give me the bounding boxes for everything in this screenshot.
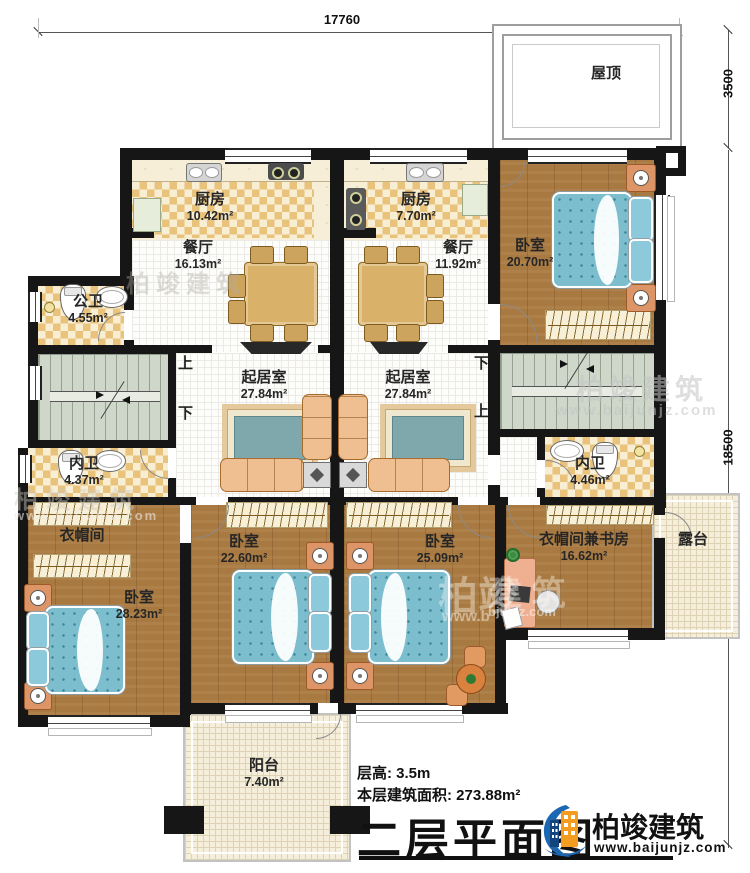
room-label-bedroom-bottom-left: 卧室28.23m²: [84, 590, 194, 621]
watermark-website: www.baijunjz.com: [14, 508, 158, 523]
room-area: 28.23m²: [84, 607, 194, 621]
dimension-roof-label: 3500: [721, 62, 736, 106]
nightstand: [306, 662, 334, 690]
bed: [232, 570, 314, 664]
room-label-cloakroom: 衣帽间: [34, 528, 130, 545]
room-name: 卧室: [478, 238, 582, 255]
room-name: 餐厅: [156, 240, 240, 257]
fridge-icon: [133, 198, 161, 232]
chair: [426, 300, 444, 324]
room-name: 卧室: [84, 590, 194, 607]
room-area: 10.42m²: [168, 209, 252, 223]
nightstand: [346, 662, 374, 690]
pillow: [349, 612, 371, 652]
window-sill: [48, 728, 152, 736]
room-area: 27.84m²: [212, 387, 316, 401]
wall: [188, 703, 225, 714]
room-area: 27.84m²: [356, 387, 460, 401]
wall: [318, 345, 344, 353]
room-area: 4.55m²: [48, 311, 128, 325]
stove-icon: [268, 163, 304, 180]
room-label-balcony: 阳台7.40m²: [214, 758, 314, 789]
room-name: 内卫: [44, 456, 124, 473]
bed-blanket: [271, 573, 298, 661]
bed-blanket: [594, 195, 620, 285]
wall: [488, 148, 500, 304]
sofa: [220, 458, 304, 492]
roof-inner-line: [512, 44, 660, 128]
window: [18, 455, 32, 483]
wall: [488, 485, 500, 505]
nightstand: [306, 542, 334, 570]
rug-center: [392, 416, 464, 460]
room-area: 16.62m²: [508, 549, 660, 563]
counter-edge: [132, 181, 330, 182]
bed-blanket: [77, 609, 103, 691]
chair: [396, 324, 420, 342]
wall: [310, 703, 318, 714]
room-name: 起居室: [212, 370, 316, 387]
floor-area-text: 本层建筑面积: 273.88m²: [357, 784, 520, 805]
stove-icon: [346, 188, 366, 230]
room-label-living-right: 起居室27.84m²: [356, 370, 460, 401]
sofa: [368, 458, 450, 492]
wall: [28, 440, 176, 448]
wall: [168, 353, 176, 447]
room-name: 露台: [658, 532, 728, 549]
room-name: 屋顶: [560, 66, 652, 83]
room-label-public-bathroom: 公卫4.55m²: [48, 294, 128, 325]
window: [225, 148, 311, 164]
kitchen-sink-icon: [406, 163, 444, 182]
wall: [537, 488, 545, 497]
room-label-roof: 屋顶: [560, 66, 652, 83]
watermark-website-right: bjunjz.com: [488, 604, 556, 619]
wall: [18, 715, 48, 727]
bed-blanket: [381, 573, 408, 661]
dimension-right-label: 18500: [721, 422, 736, 474]
lamp-icon: [634, 446, 645, 457]
room-name: 阳台: [214, 758, 314, 775]
wall: [338, 703, 356, 714]
dining-table: [244, 262, 318, 326]
chair: [250, 324, 274, 342]
pillow: [309, 612, 331, 652]
nightstand: [346, 542, 374, 570]
room-label-bathroom-left: 内卫4.37m²: [44, 456, 124, 487]
chair: [364, 246, 388, 264]
window-sill: [225, 715, 312, 723]
stairs-left-down-label: 下: [178, 402, 193, 423]
chair: [250, 246, 274, 264]
pillow: [349, 574, 371, 614]
room-area: 4.46m²: [548, 473, 632, 487]
brand-website: www.baijunjz.com: [594, 840, 727, 855]
room-label-bedroom-top-right: 卧室20.70m²: [478, 238, 582, 269]
stairs-arrow-icon: [560, 360, 568, 368]
room-name: 卧室: [388, 534, 492, 551]
window: [370, 148, 467, 164]
wall: [654, 505, 665, 515]
chair: [426, 274, 444, 298]
nightstand: [626, 164, 656, 192]
stairs-left-up-label: 上: [178, 352, 193, 373]
party-wall: [330, 148, 344, 238]
room-area: 4.37m²: [44, 473, 124, 487]
chair: [284, 324, 308, 342]
kitchen-sink-icon: [186, 163, 222, 182]
hall-right-floor: [500, 437, 537, 497]
wall: [540, 497, 665, 505]
room-label-bathroom-right: 内卫4.46m²: [548, 456, 632, 487]
room-area: 20.70m²: [478, 255, 582, 269]
chair: [364, 324, 388, 342]
room-label-bedroom-mid-left: 卧室22.60m²: [192, 534, 296, 565]
pillow: [27, 648, 49, 686]
window: [28, 292, 42, 322]
rug-center: [234, 416, 306, 460]
room-label-dining-left: 餐厅16.13m²: [156, 240, 240, 271]
balcony-pier: [164, 806, 204, 834]
floor-height-text: 层高: 3.5m: [357, 762, 430, 783]
extension-line: [38, 18, 39, 38]
wardrobe: [226, 502, 328, 528]
room-name: 厨房: [374, 192, 458, 209]
nightstand: [626, 284, 656, 312]
room-area: 16.13m²: [156, 257, 240, 271]
stairs-arrow-icon: [96, 391, 104, 399]
chair: [228, 300, 246, 324]
room-area: 7.70m²: [374, 209, 458, 223]
window: [28, 366, 42, 400]
room-label-study: 衣帽间兼书房16.62m²: [508, 532, 660, 563]
tv-icon: [370, 342, 428, 354]
pillow: [27, 612, 49, 650]
wall: [500, 429, 654, 437]
room-label-living-left: 起居室27.84m²: [212, 370, 316, 401]
stairs-left-rail: [50, 391, 160, 402]
brand-logo-icon: [540, 804, 590, 858]
room-label-bedroom-mid-right: 卧室25.09m²: [388, 534, 492, 565]
room-area: 25.09m²: [388, 551, 492, 565]
dimension-top-label: 17760: [300, 12, 384, 27]
pillow: [309, 574, 331, 614]
watermark-website: www.baijunjz.com: [556, 402, 717, 419]
wall: [28, 345, 176, 354]
chair: [396, 246, 420, 264]
wall: [462, 703, 508, 714]
wall: [488, 345, 666, 353]
fridge-icon: [462, 184, 488, 216]
sofa: [302, 394, 332, 460]
stairs-right-down-label: 下: [474, 352, 489, 373]
wall: [150, 715, 190, 727]
wall: [180, 543, 191, 715]
round-table: [456, 664, 486, 694]
window-sill: [528, 641, 630, 649]
wall: [537, 437, 545, 460]
room-name: 公卫: [48, 294, 128, 311]
window-sill: [667, 196, 675, 302]
tv-icon: [240, 342, 312, 354]
room-area: 22.60m²: [192, 551, 296, 565]
wardrobe: [545, 310, 651, 340]
coffee-table: [303, 462, 331, 488]
room-name: 厨房: [168, 192, 252, 209]
floor-plan: 17760 3500 18500: [0, 0, 750, 873]
pillow: [629, 239, 653, 283]
pillow: [629, 197, 653, 241]
window: [528, 148, 627, 164]
room-name: 起居室: [356, 370, 460, 387]
room-name: 内卫: [548, 456, 632, 473]
stairs-arrow-icon: [122, 396, 130, 404]
wardrobe: [346, 502, 452, 528]
wall: [488, 352, 500, 455]
room-label-kitchen-right: 厨房7.70m²: [374, 192, 458, 223]
coffee-table: [339, 462, 367, 488]
chair: [284, 246, 308, 264]
room-name: 衣帽间兼书房: [508, 532, 660, 549]
room-label-kitchen-left: 厨房10.42m²: [168, 192, 252, 223]
stairs-right-up-label: 上: [474, 400, 489, 421]
title-underline: [359, 856, 673, 860]
room-label-terrace: 露台: [658, 532, 728, 549]
sofa: [338, 394, 368, 460]
watermark-website-left: www.b: [442, 608, 490, 625]
wardrobe: [546, 505, 654, 525]
window-sill: [356, 715, 464, 723]
dining-table: [358, 262, 428, 326]
room-area: 7.40m²: [214, 775, 314, 789]
room-name: 卧室: [192, 534, 296, 551]
wardrobe: [33, 554, 131, 578]
room-name: 衣帽间: [34, 528, 130, 545]
